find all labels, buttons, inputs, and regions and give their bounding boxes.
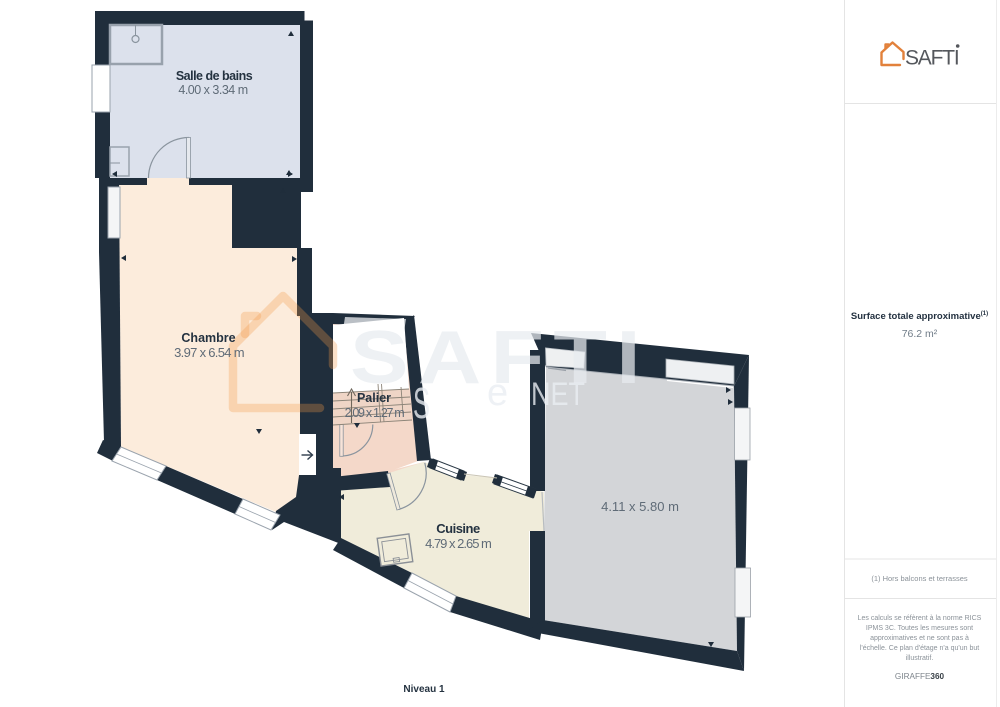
svg-text:NET: NET	[531, 376, 585, 412]
svg-text:approximatives et ne sont pas: approximatives et ne sont pas à	[870, 635, 969, 642]
svg-text:4.00 x 3.34 m: 4.00 x 3.34 m	[178, 83, 247, 97]
svg-text:Palier: Palier	[357, 391, 391, 405]
svg-text:Surface totale approximative(1: Surface totale approximative(1)	[851, 311, 988, 322]
svg-text:3.97 x 6.54 m: 3.97 x 6.54 m	[174, 345, 244, 360]
svg-text:Salle de bains: Salle de bains	[176, 69, 253, 83]
svg-text:76.2 m²: 76.2 m²	[902, 328, 938, 340]
svg-text:SAFTI: SAFTI	[905, 47, 959, 70]
svg-text:4.79 x 2.65 m: 4.79 x 2.65 m	[425, 536, 491, 551]
svg-text:Les calculs se réfèrent à la n: Les calculs se réfèrent à la norme RICS	[858, 615, 982, 622]
svg-text:Chambre: Chambre	[181, 331, 235, 345]
svg-text:4.11 x 5.80 m: 4.11 x 5.80 m	[601, 499, 679, 514]
svg-text:Niveau 1: Niveau 1	[403, 684, 445, 695]
svg-text:illustratif.: illustratif.	[906, 655, 934, 662]
svg-text:IPMS 3C. Toutes les mesures so: IPMS 3C. Toutes les mesures sont	[866, 625, 973, 632]
svg-text:Cuisine: Cuisine	[436, 521, 480, 536]
svg-text:S: S	[413, 379, 430, 428]
svg-text:GIRAFFE360: GIRAFFE360	[895, 672, 945, 681]
svg-text:e: e	[487, 372, 508, 414]
svg-text:(1) Hors balcons et terrasses: (1) Hors balcons et terrasses	[871, 574, 968, 583]
svg-text:2.09 x 1.27 m: 2.09 x 1.27 m	[345, 406, 405, 420]
svg-text:l'échelle. Ce plan d'étage n'a: l'échelle. Ce plan d'étage n'a qu'un but	[860, 645, 979, 652]
